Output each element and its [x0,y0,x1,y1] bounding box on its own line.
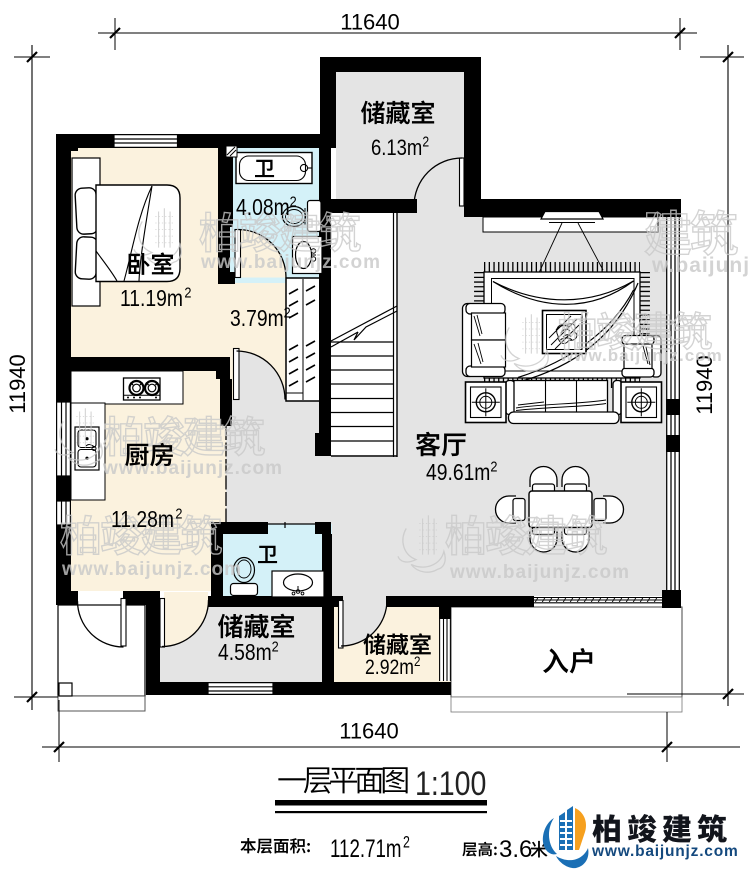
svg-text:11.19m: 11.19m [120,287,183,312]
svg-text:www.baijunjz.com: www.baijunjz.com [449,562,630,583]
svg-text:2: 2 [175,504,182,521]
svg-text:2: 2 [284,303,291,320]
svg-text:112.71m: 112.71m [330,834,402,862]
svg-text:6.13m: 6.13m [371,137,422,161]
svg-text:11640: 11640 [339,719,399,744]
svg-text:www.baijunjz.com: www.baijunjz.com [559,346,723,365]
svg-text:4.08m: 4.08m [236,196,290,221]
svg-text:2: 2 [414,653,420,669]
svg-text:1:100: 1:100 [415,765,486,803]
svg-text:2: 2 [184,283,191,300]
svg-text:11640: 11640 [340,10,400,35]
svg-text:2: 2 [290,192,297,209]
svg-text:3.79m: 3.79m [230,307,284,332]
svg-text:www.baijunjz.com: www.baijunjz.com [61,559,242,580]
svg-text:11.28m: 11.28m [111,508,174,533]
svg-text:2: 2 [403,834,410,852]
svg-text:2.92m: 2.92m [365,656,414,680]
svg-text:www.baijunjz.com: www.baijunjz.com [102,458,283,479]
svg-text:4.58m: 4.58m [218,641,272,666]
svg-text:3.6: 3.6 [499,836,532,863]
svg-text:2: 2 [272,637,279,654]
svg-text:www.baijunjz.com: www.baijunjz.com [591,843,739,860]
svg-text:2: 2 [490,457,497,474]
svg-text:2: 2 [422,134,429,150]
svg-text:w.baijunjz.com: w.baijunjz.com [651,254,750,277]
svg-text:11940: 11940 [5,354,30,414]
svg-text:www.baijunjz.com: www.baijunjz.com [200,252,381,273]
svg-text:49.61m: 49.61m [426,461,490,486]
